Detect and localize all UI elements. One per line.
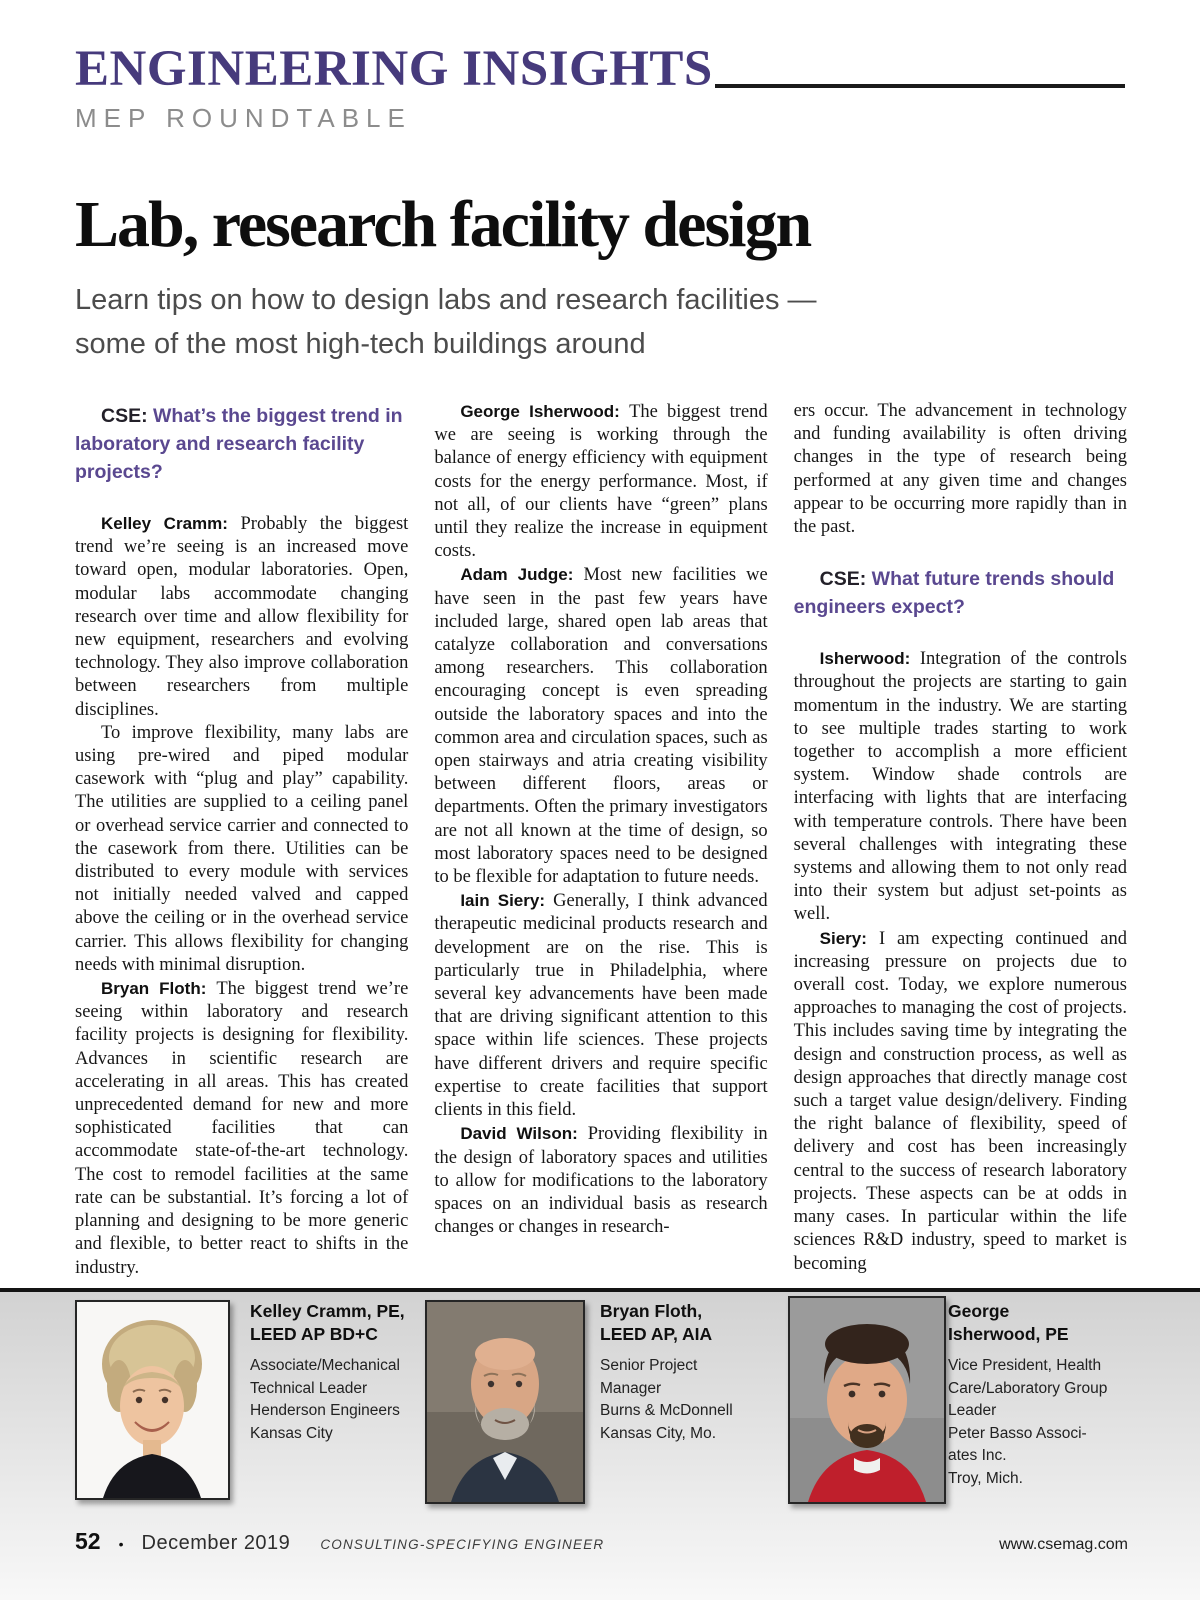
- bio-name-line: Isherwood, PE: [948, 1323, 1118, 1346]
- speaker-name: George Isherwood:: [460, 402, 629, 421]
- article-column-2: George Isherwood: The biggest trend we a…: [434, 400, 767, 1286]
- masthead-subtitle: MEP ROUNDTABLE: [75, 103, 1125, 134]
- masthead-title: ENGINEERING INSIGHTS: [75, 44, 713, 95]
- bio-details: Vice President, HealthCare/Laboratory Gr…: [948, 1355, 1118, 1490]
- masthead: ENGINEERING INSIGHTS MEP ROUNDTABLE: [75, 44, 1125, 134]
- body-paragraph: Siery: I am expecting continued and incr…: [794, 927, 1127, 1276]
- question-prefix: CSE:: [101, 405, 153, 427]
- body-paragraph: To improve flexibility, many labs are us…: [75, 722, 408, 977]
- article-body: CSE: What’s the biggest trend in laborat…: [75, 400, 1127, 1286]
- bio-george-isherwood: GeorgeIsherwood, PE Vice President, Heal…: [948, 1300, 1118, 1490]
- speaker-name: David Wilson:: [460, 1124, 587, 1143]
- bio-name-line: LEED AP BD+C: [250, 1323, 420, 1346]
- speaker-name: Adam Judge:: [460, 565, 583, 584]
- footer-website-link[interactable]: www.csemag.com: [999, 1536, 1128, 1554]
- bio-detail-line: Kansas City, Mo.: [600, 1423, 770, 1446]
- bio-details: Associate/MechanicalTechnical LeaderHend…: [250, 1355, 420, 1445]
- bio-detail-line: Care/Laboratory Group: [948, 1378, 1118, 1401]
- bio-detail-line: Peter Basso Associ-: [948, 1423, 1118, 1446]
- body-paragraph: David Wilson: Providing flexibility in t…: [434, 1122, 767, 1239]
- page-number: 52: [75, 1528, 101, 1555]
- footer-magazine-name: Consulting-Specifying Engineer: [320, 1537, 604, 1552]
- magazine-page: ENGINEERING INSIGHTS MEP ROUNDTABLE Lab,…: [0, 0, 1200, 1600]
- bio-kelley-cramm: Kelley Cramm, PE,LEED AP BD+C Associate/…: [250, 1300, 420, 1445]
- footer-date: December 2019: [142, 1532, 291, 1555]
- bio-detail-line: ates Inc.: [948, 1445, 1118, 1468]
- bio-detail-line: Leader: [948, 1400, 1118, 1423]
- body-paragraph: George Isherwood: The biggest trend we a…: [434, 400, 767, 563]
- bio-detail-line: Henderson Engineers: [250, 1400, 420, 1423]
- speaker-name: Siery:: [820, 929, 879, 948]
- body-paragraph: Bryan Floth: The biggest trend we’re see…: [75, 977, 408, 1280]
- article-title: Lab, research facility design: [75, 190, 1125, 259]
- question-heading: CSE: What future trends should engineers…: [794, 565, 1127, 621]
- bio-name-line: LEED AP, AIA: [600, 1323, 770, 1346]
- bio-bryan-floth: Bryan Floth,LEED AP, AIA Senior ProjectM…: [600, 1300, 770, 1445]
- question-heading: CSE: What’s the biggest trend in laborat…: [75, 402, 408, 486]
- article-subtitle-line: Learn tips on how to design labs and res…: [75, 278, 975, 322]
- speaker-name: Isherwood:: [820, 649, 920, 668]
- bio-detail-line: Troy, Mich.: [948, 1468, 1118, 1491]
- bio-detail-line: Associate/Mechanical: [250, 1355, 420, 1378]
- bryan-floth-photo: [425, 1300, 585, 1504]
- bio-detail-line: Vice President, Health: [948, 1355, 1118, 1378]
- question-prefix: CSE:: [820, 568, 872, 590]
- body-paragraph: Kelley Cramm: Probably the biggest trend…: [75, 512, 408, 722]
- bio-detail-line: Senior Project: [600, 1355, 770, 1378]
- kelley-cramm-photo: [75, 1300, 230, 1500]
- george-isherwood-photo: [788, 1296, 946, 1504]
- article-column-3: ers occur. The advancement in technology…: [794, 400, 1127, 1286]
- speaker-name: Iain Siery:: [460, 891, 553, 910]
- speaker-name: Kelley Cramm:: [101, 514, 241, 533]
- bio-name-line: George: [948, 1300, 1118, 1323]
- article-subtitle-line: some of the most high-tech buildings aro…: [75, 322, 975, 366]
- article-subtitle: Learn tips on how to design labs and res…: [75, 278, 975, 366]
- bio-name-line: Kelley Cramm, PE,: [250, 1300, 420, 1323]
- speaker-name: Bryan Floth:: [101, 979, 216, 998]
- bio-details: Senior ProjectManagerBurns & McDonnellKa…: [600, 1355, 770, 1445]
- bio-detail-line: Kansas City: [250, 1423, 420, 1446]
- bio-name: Kelley Cramm, PE,LEED AP BD+C: [250, 1300, 420, 1346]
- page-footer: 52 • December 2019 Consulting-Specifying…: [75, 1528, 1128, 1555]
- bio-name-line: Bryan Floth,: [600, 1300, 770, 1323]
- bio-detail-line: Burns & McDonnell: [600, 1400, 770, 1423]
- body-paragraph: Isherwood: Integration of the controls t…: [794, 647, 1127, 926]
- bio-name: GeorgeIsherwood, PE: [948, 1300, 1118, 1346]
- bio-detail-line: Technical Leader: [250, 1378, 420, 1401]
- article-column-1: CSE: What’s the biggest trend in laborat…: [75, 400, 408, 1286]
- body-paragraph: Adam Judge: Most new facilities we have …: [434, 563, 767, 889]
- body-paragraph: ers occur. The advancement in technology…: [794, 400, 1127, 539]
- masthead-rule: [715, 84, 1125, 88]
- footer-bullet: •: [119, 1536, 124, 1552]
- bio-detail-line: Manager: [600, 1378, 770, 1401]
- body-paragraph: Iain Siery: Generally, I think advanced …: [434, 889, 767, 1122]
- bio-name: Bryan Floth,LEED AP, AIA: [600, 1300, 770, 1346]
